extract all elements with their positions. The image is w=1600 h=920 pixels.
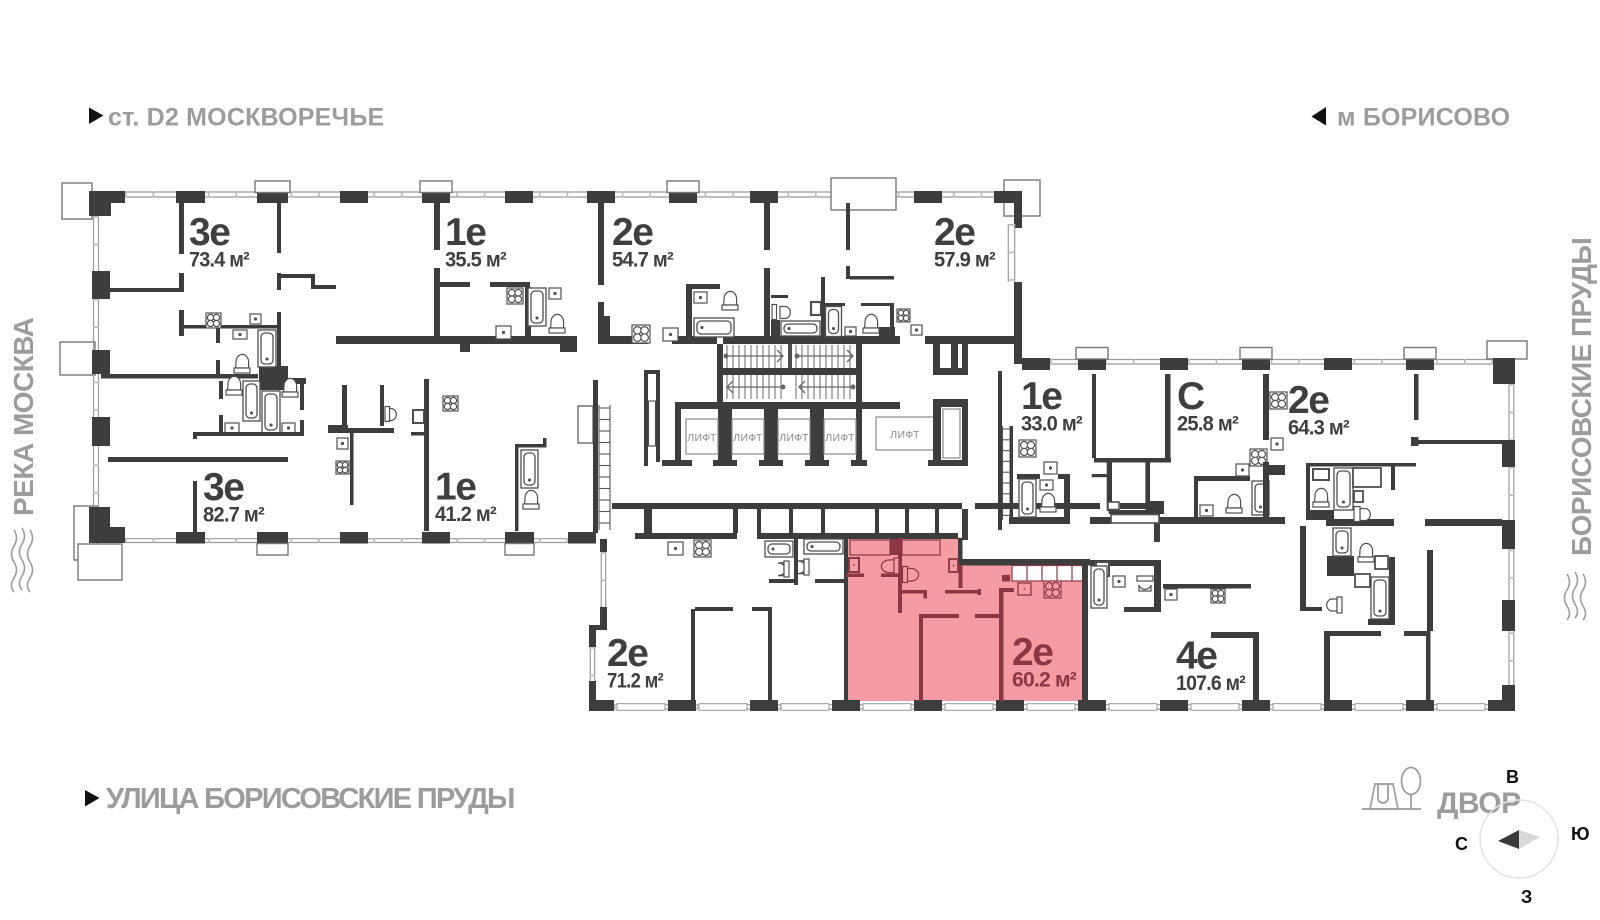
svg-text:107.6 м²: 107.6 м² xyxy=(1176,672,1246,695)
svg-text:РЕКА МОСКВА: РЕКА МОСКВА xyxy=(8,317,39,516)
svg-text:ДВОР: ДВОР xyxy=(1437,787,1521,820)
svg-text:ЛИФТ: ЛИФТ xyxy=(779,432,809,444)
svg-text:ЛИФТ: ЛИФТ xyxy=(733,432,763,444)
svg-text:25.8 м²: 25.8 м² xyxy=(1177,413,1239,436)
svg-text:73.4 м²: 73.4 м² xyxy=(189,249,250,272)
svg-text:33.0 м²: 33.0 м² xyxy=(1021,413,1083,436)
svg-text:60.2 м²: 60.2 м² xyxy=(1012,669,1077,692)
svg-text:64.3 м²: 64.3 м² xyxy=(1288,417,1350,440)
svg-text:В: В xyxy=(1506,767,1519,787)
svg-text:57.9 м²: 57.9 м² xyxy=(934,249,996,272)
svg-text:Ю: Ю xyxy=(1571,824,1590,844)
svg-text:С: С xyxy=(1455,834,1468,854)
svg-text:82.7 м²: 82.7 м² xyxy=(203,504,265,527)
svg-text:ЛИФТ: ЛИФТ xyxy=(890,429,920,441)
svg-text:54.7 м²: 54.7 м² xyxy=(612,249,674,272)
svg-text:ЛИФТ: ЛИФТ xyxy=(687,432,717,444)
svg-text:ст. D2 МОСКВОРЕЧЬЕ: ст. D2 МОСКВОРЕЧЬЕ xyxy=(108,104,384,132)
svg-text:БОРИСОВСКИЕ ПРУДЫ: БОРИСОВСКИЕ ПРУДЫ xyxy=(1566,238,1597,556)
svg-text:35.5 м²: 35.5 м² xyxy=(445,249,507,272)
svg-text:ЛИФТ: ЛИФТ xyxy=(825,432,855,444)
svg-text:УЛИЦА БОРИСОВСКИЕ ПРУДЫ: УЛИЦА БОРИСОВСКИЕ ПРУДЫ xyxy=(106,783,514,815)
svg-text:З: З xyxy=(1521,887,1532,907)
svg-text:41.2 м²: 41.2 м² xyxy=(435,503,497,526)
svg-text:м БОРИСОВО: м БОРИСОВО xyxy=(1337,104,1510,132)
svg-text:71.2 м²: 71.2 м² xyxy=(607,670,664,693)
